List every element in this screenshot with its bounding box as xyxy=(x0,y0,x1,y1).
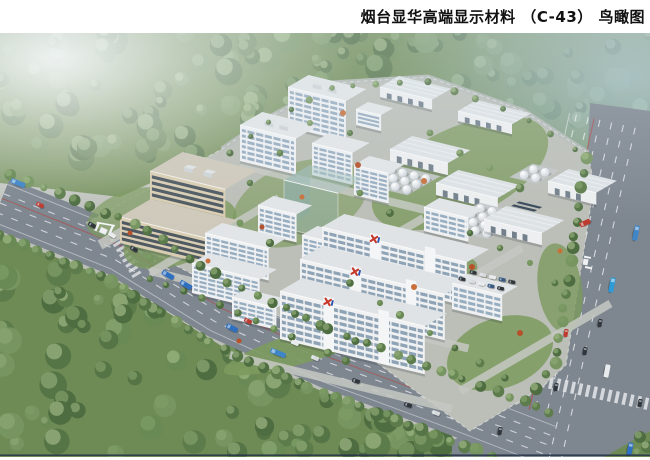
aerial-rendering xyxy=(0,33,650,457)
atmosphere-veil xyxy=(0,33,650,457)
bottom-border xyxy=(0,454,650,456)
rendering-svg xyxy=(0,33,650,457)
page-header: 烟台显华高端显示材料 （C-43） 鸟瞰图 xyxy=(0,0,650,33)
page-title: 烟台显华高端显示材料 （C-43） 鸟瞰图 xyxy=(361,6,645,27)
